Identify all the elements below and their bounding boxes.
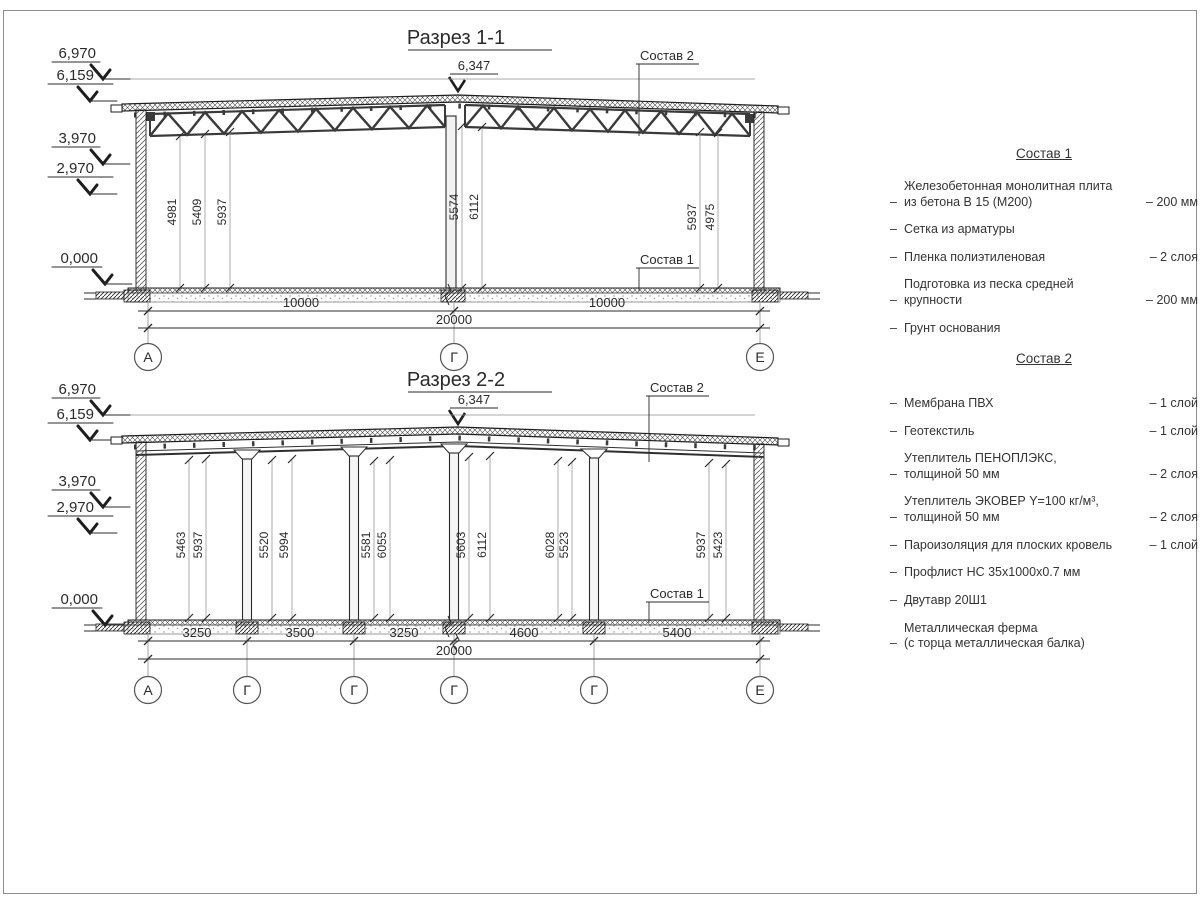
section2-wall-left	[136, 442, 146, 620]
section1-callouts: Состав 2 Состав 1	[636, 48, 699, 291]
item-text: Подготовка из песка средней крупности	[904, 277, 1138, 308]
axis-label: А	[143, 682, 153, 698]
elevation-text: 6,159	[56, 67, 94, 84]
bullet: –	[890, 293, 897, 309]
height-dim: 5581	[359, 531, 373, 558]
height-dim: 4975	[703, 203, 717, 230]
list-item: – Металлическая ферма (с торца металличе…	[890, 621, 1198, 652]
section1-axes: А Г Е	[135, 344, 774, 371]
section2-callouts: Состав 2 Состав 1	[646, 380, 709, 623]
list-item: – Утеплитель ЭКОВЕР Y=100 кг/м³, толщино…	[890, 494, 1198, 525]
list-item: – Утеплитель ПЕНОПЛЭКС, толщиной 50 мм –…	[890, 451, 1198, 482]
height-dim: 6112	[467, 194, 481, 220]
axis-label: Г	[243, 682, 251, 698]
item-text: Утеплитель ПЕНОПЛЭКС, толщиной 50 мм	[904, 451, 1142, 482]
section2-axes: А Г Г Г Г Е	[135, 677, 774, 704]
span-dim: 3250	[183, 625, 212, 640]
height-dim: 5523	[557, 531, 571, 558]
callout-sostav2: Состав 2	[640, 48, 694, 63]
elevation-text: 0,000	[60, 591, 98, 608]
height-dim: 4981	[165, 198, 179, 225]
level-arrow-icon	[78, 519, 97, 533]
height-dim: 6028	[543, 531, 557, 558]
column	[590, 458, 599, 620]
apron-left	[96, 292, 124, 299]
eave-cap-right	[778, 107, 789, 114]
axis-label: Г	[590, 682, 598, 698]
level-arrow-icon	[93, 270, 112, 284]
item-qty: – 200 мм	[1146, 293, 1198, 309]
axis-label: Е	[755, 349, 764, 365]
height-dim: 6112	[475, 532, 489, 558]
column-capital	[341, 447, 367, 456]
section2-elevation-marks: 6,970 6,159 3,970 2,970	[48, 381, 132, 625]
elevation-text: 6,970	[58, 381, 96, 398]
sostav1-list: Состав 1 – Железобетонная монолитная пли…	[890, 146, 1198, 348]
sostav2-title: Состав 2	[890, 351, 1198, 368]
height-dim: 5520	[257, 531, 271, 558]
total-dim: 20000	[436, 643, 472, 658]
section1-height-leaders: 4981 5409 5937 5574 6112 5937 4975	[165, 122, 722, 292]
span-dim: 10000	[589, 295, 625, 310]
list-item: – Подготовка из песка средней крупности …	[890, 277, 1198, 308]
column-capital	[581, 449, 607, 458]
list-item: – Геотекстиль – 1 слой	[890, 424, 1198, 440]
level-arrow-icon	[78, 87, 97, 101]
list-item: – Мембрана ПВХ – 1 слой	[890, 396, 1198, 412]
bullet: –	[890, 467, 897, 483]
item-qty: – 2 слоя	[1150, 510, 1198, 526]
apron-right	[780, 624, 808, 631]
list-item: – Пленка полиэтиленовая – 2 слоя	[890, 250, 1198, 266]
bullet: –	[890, 636, 897, 652]
item-text: Грунт основания	[904, 321, 1190, 337]
elevation-text: 3,970	[58, 130, 96, 147]
span-dim: 10000	[283, 295, 319, 310]
apron-right	[780, 292, 808, 299]
height-dim: 5937	[215, 198, 229, 225]
elevation-text: 0,000	[60, 250, 98, 267]
column-capital	[234, 450, 260, 459]
height-dim: 5937	[685, 203, 699, 230]
section1-elevation-marks: 6,970 6,159 3,970 2,970	[48, 45, 132, 284]
callout-sostav2: Состав 2	[650, 380, 704, 395]
bullet: –	[890, 222, 897, 238]
column	[350, 456, 359, 620]
section1-roof-slab	[122, 95, 778, 113]
sostav2-list: Состав 2 – Мембрана ПВХ – 1 слой – Геоте…	[890, 351, 1198, 664]
axis-label: Е	[755, 682, 764, 698]
item-text: Двутавр 20Ш1	[904, 593, 1190, 609]
bearing-block	[745, 114, 754, 123]
eave-cap-left	[111, 437, 122, 444]
section2-ridge-dim: 6,347	[458, 392, 491, 407]
item-text: Металлическая ферма (с торца металлическ…	[904, 621, 1190, 652]
height-dim: 6055	[375, 531, 389, 558]
item-qty: – 2 слоя	[1150, 250, 1198, 266]
elevation-text: 6,159	[56, 406, 94, 423]
level-arrow-icon	[93, 611, 112, 625]
list-item: – Профлист НС 35х1000х0.7 мм	[890, 565, 1198, 581]
elevation-text: 3,970	[58, 473, 96, 490]
item-text: Сетка из арматуры	[904, 222, 1190, 238]
apron-left	[96, 624, 124, 631]
height-dim: 5463	[174, 531, 188, 558]
bullet: –	[890, 424, 897, 440]
bullet: –	[890, 565, 897, 581]
height-dim: 5409	[190, 198, 204, 225]
eave-cap-left	[111, 105, 122, 112]
list-item: – Железобетонная монолитная плита из бет…	[890, 179, 1198, 210]
span-dim: 4600	[510, 625, 539, 640]
column	[243, 459, 252, 620]
section1-title: Разрез 1-1	[407, 27, 505, 49]
item-qty: – 1 слой	[1150, 396, 1198, 412]
section1-wall-right	[754, 112, 764, 290]
list-item: – Двутавр 20Ш1	[890, 593, 1198, 609]
item-qty: – 200 мм	[1146, 195, 1198, 211]
section-2: Разрез 2-2 6,347 6,970 6,159 3,970	[48, 369, 820, 704]
total-dim: 20000	[436, 312, 472, 327]
item-text: Утеплитель ЭКОВЕР Y=100 кг/м³, толщиной …	[904, 494, 1142, 525]
height-dim: 5574	[447, 193, 461, 220]
section1-ridge-dim: 6,347	[458, 58, 491, 73]
list-item: – Грунт основания	[890, 321, 1198, 337]
item-text: Профлист НС 35х1000х0.7 мм	[904, 565, 1190, 581]
item-qty: – 2 слоя	[1150, 467, 1198, 483]
list-item: – Сетка из арматуры	[890, 222, 1198, 238]
height-dim: 5423	[711, 531, 725, 558]
bullet: –	[890, 250, 897, 266]
bullet: –	[890, 321, 897, 337]
drawing-sheet: Разрез 1-1 6,347 6,970 6,159 3,970	[0, 0, 1200, 900]
axis-label: Г	[450, 682, 458, 698]
item-text: Мембрана ПВХ	[904, 396, 1142, 412]
callout-sostav1: Состав 1	[640, 252, 694, 267]
sostav1-title: Состав 1	[890, 146, 1198, 163]
sections-drawing: Разрез 1-1 6,347 6,970 6,159 3,970	[0, 0, 840, 730]
item-text: Железобетонная монолитная плита из бетон…	[904, 179, 1138, 210]
item-qty: – 1 слой	[1150, 424, 1198, 440]
bullet: –	[890, 538, 897, 554]
height-dim: 5603	[454, 531, 468, 558]
elevation-text: 2,970	[56, 160, 94, 177]
bullet: –	[890, 510, 897, 526]
callout-sostav1: Состав 1	[650, 586, 704, 601]
span-dim: 3500	[286, 625, 315, 640]
eave-cap-right	[778, 439, 789, 446]
height-dim: 5937	[694, 531, 708, 558]
section1-wall-left	[136, 110, 146, 290]
height-dim: 5937	[191, 531, 205, 558]
axis-label: Г	[450, 349, 458, 365]
span-dim: 3250	[390, 625, 419, 640]
level-arrow-icon	[78, 180, 97, 194]
axis-label: Г	[350, 682, 358, 698]
bearing-block	[146, 112, 155, 121]
column-capital	[441, 444, 467, 453]
span-dim: 5400	[663, 625, 692, 640]
item-text: Пароизоляция для плоских кровель	[904, 538, 1142, 554]
bullet: –	[890, 195, 897, 211]
section2-wall-right	[754, 444, 764, 620]
ridge-arrow-icon	[449, 410, 465, 424]
axis-label: А	[143, 349, 153, 365]
item-qty: – 1 слой	[1150, 538, 1198, 554]
item-text: Пленка полиэтиленовая	[904, 250, 1142, 266]
bullet: –	[890, 396, 897, 412]
elevation-text: 6,970	[58, 45, 96, 62]
item-text: Геотекстиль	[904, 424, 1142, 440]
section2-title: Разрез 2-2	[407, 369, 505, 391]
elevation-text: 2,970	[56, 499, 94, 516]
section-1: Разрез 1-1 6,347 6,970 6,159 3,970	[48, 27, 820, 371]
bullet: –	[890, 593, 897, 609]
height-dim: 5994	[277, 531, 291, 558]
list-item: – Пароизоляция для плоских кровель – 1 с…	[890, 538, 1198, 554]
level-arrow-icon	[78, 426, 97, 440]
